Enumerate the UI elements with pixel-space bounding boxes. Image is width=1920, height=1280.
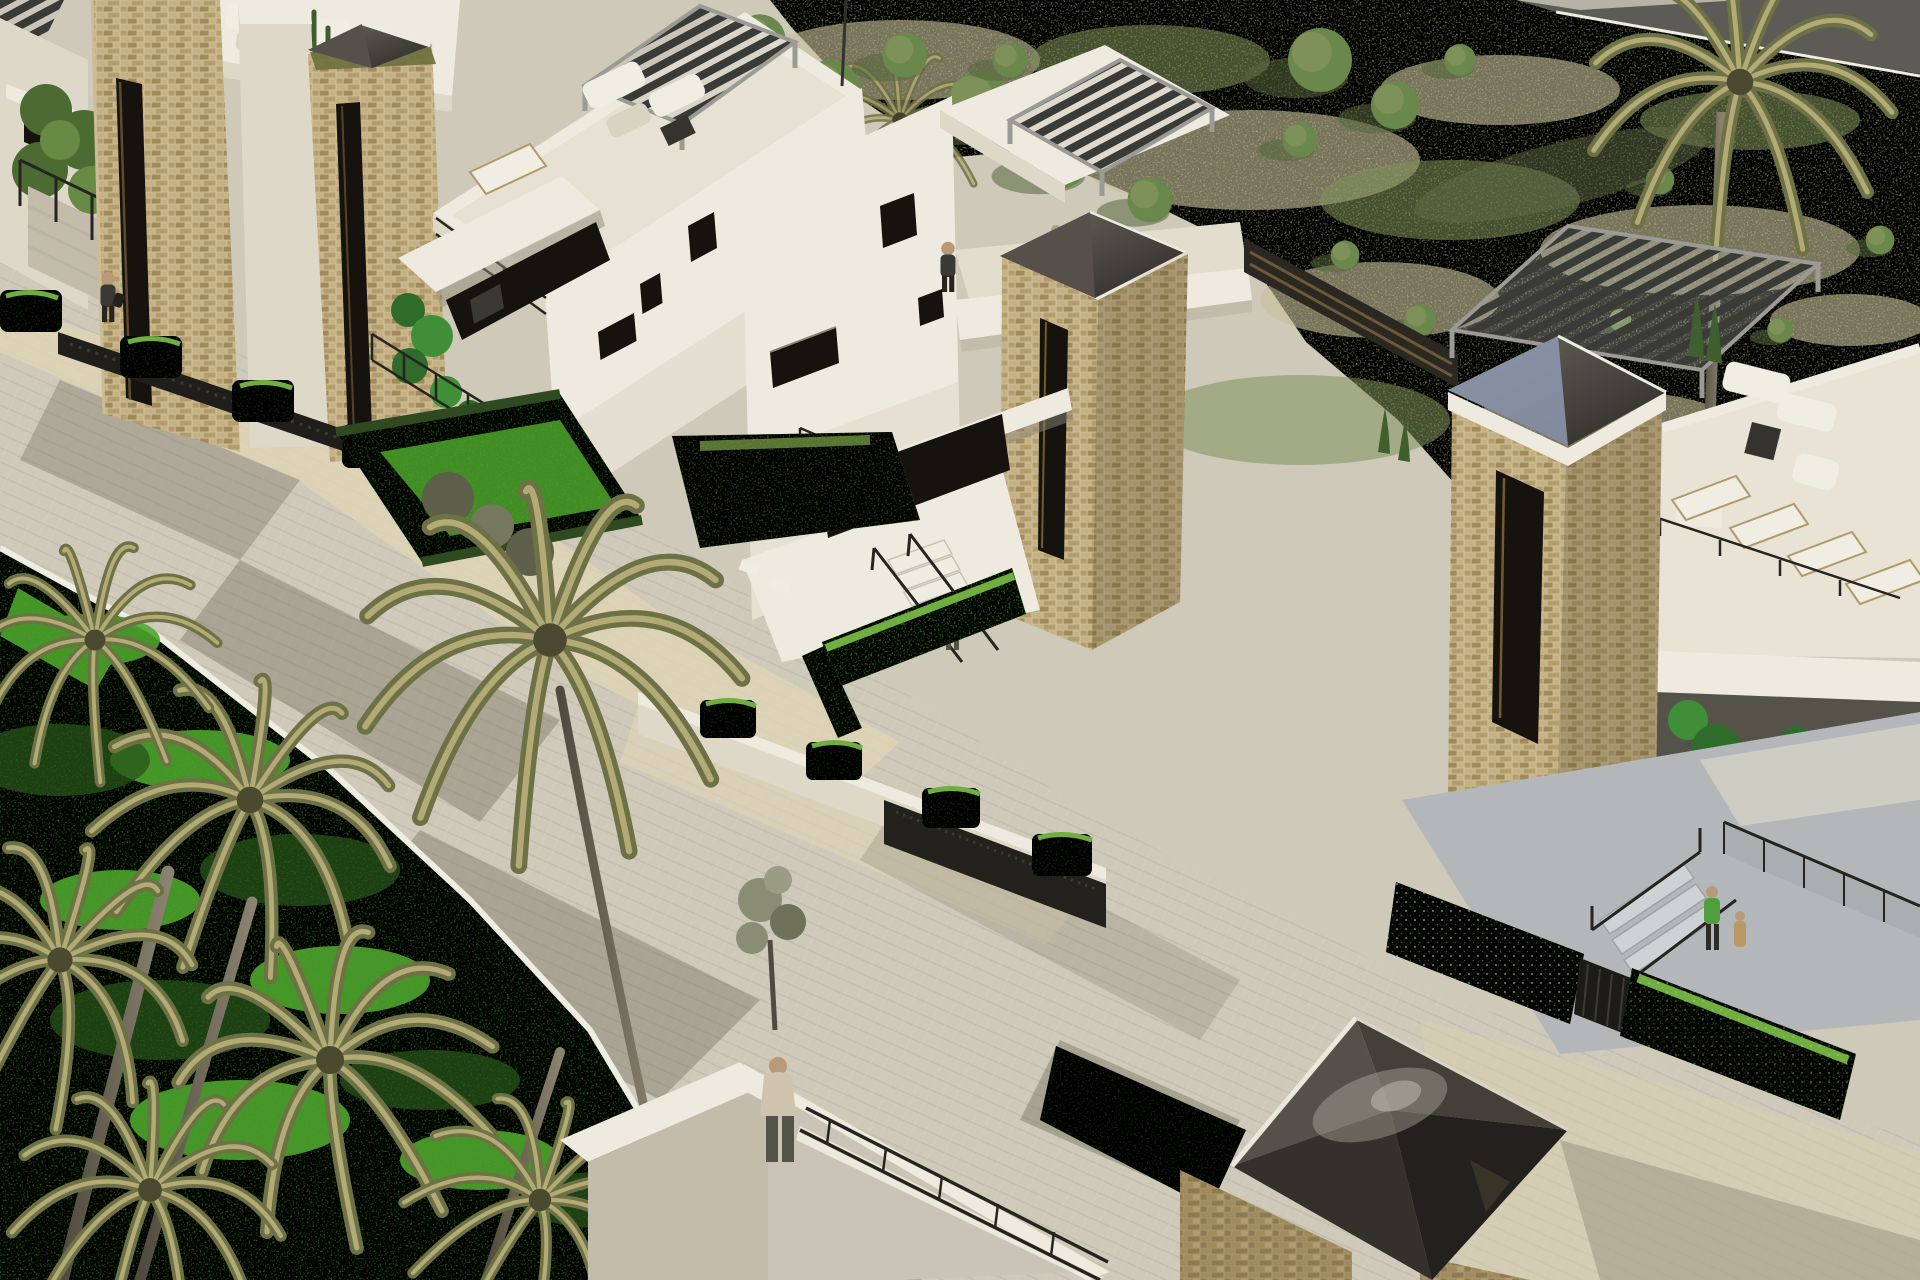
architectural-render: Aerial 3D rendering of a modern Mediterr… [0,0,1920,1280]
stone-tower-b [308,24,448,462]
person-child [1734,911,1746,947]
